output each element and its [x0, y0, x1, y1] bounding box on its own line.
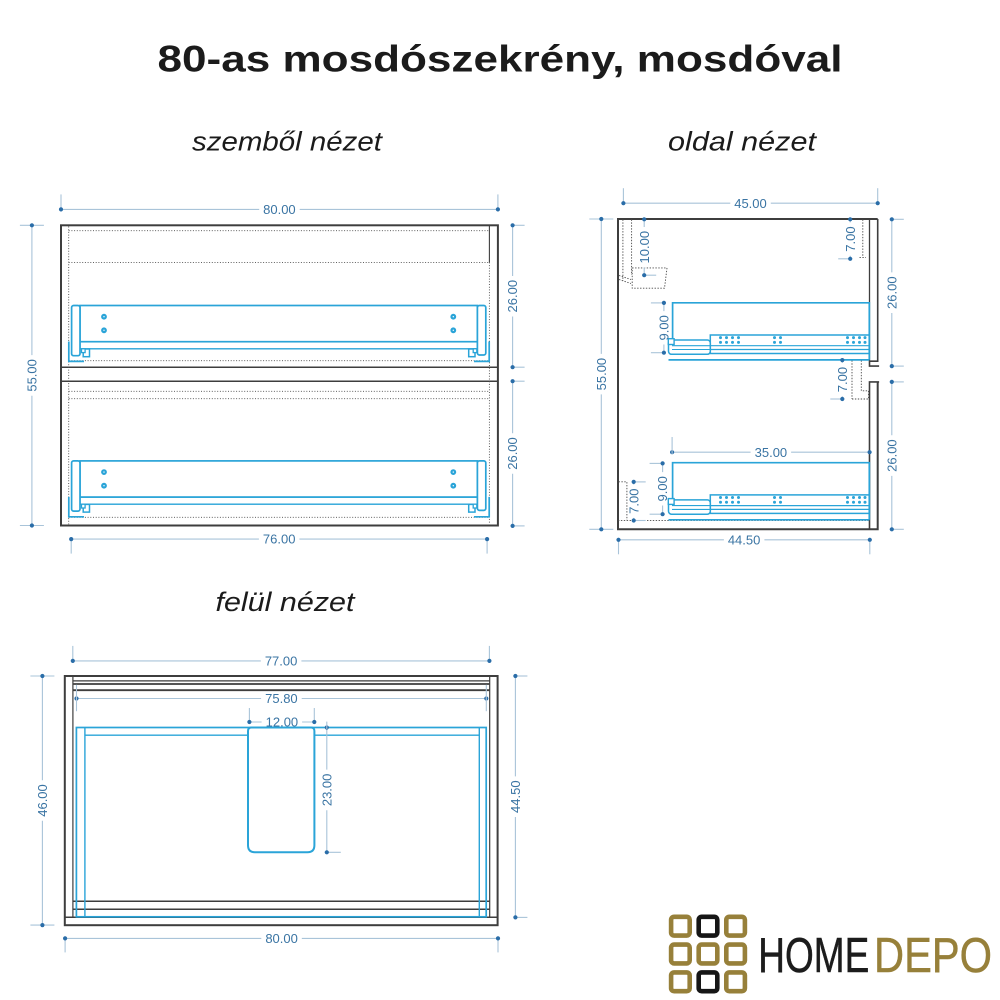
svg-text:80.00: 80.00 [263, 202, 296, 217]
svg-text:77.00: 77.00 [265, 654, 298, 669]
svg-text:44.50: 44.50 [728, 532, 761, 547]
svg-text:9.00: 9.00 [657, 315, 672, 340]
svg-text:7.00: 7.00 [626, 489, 641, 514]
svg-text:26.00: 26.00 [505, 437, 520, 470]
svg-text:80-as mosdószekrény, mosdóval: 80-as mosdószekrény, mosdóval [158, 39, 843, 80]
svg-text:26.00: 26.00 [884, 439, 899, 472]
svg-text:55.00: 55.00 [25, 359, 40, 392]
svg-text:26.00: 26.00 [884, 276, 899, 309]
svg-text:23.00: 23.00 [319, 774, 334, 807]
svg-text:7.00: 7.00 [843, 226, 858, 251]
svg-text:szemből nézet: szemből nézet [192, 127, 384, 157]
svg-text:45.00: 45.00 [734, 196, 767, 211]
svg-text:DEPO: DEPO [874, 929, 992, 983]
svg-text:44.50: 44.50 [508, 780, 523, 813]
svg-text:12.00: 12.00 [266, 715, 299, 730]
svg-text:75.80: 75.80 [265, 691, 298, 706]
svg-text:felül nézet: felül nézet [216, 587, 357, 617]
svg-text:26.00: 26.00 [505, 280, 520, 313]
svg-text:35.00: 35.00 [755, 445, 788, 460]
svg-text:9.00: 9.00 [655, 476, 670, 501]
svg-text:oldal nézet: oldal nézet [668, 127, 818, 157]
svg-text:55.00: 55.00 [594, 358, 609, 391]
svg-text:10.00: 10.00 [637, 231, 652, 264]
svg-text:80.00: 80.00 [265, 931, 298, 946]
svg-text:46.00: 46.00 [35, 784, 50, 817]
svg-text:7.00: 7.00 [835, 367, 850, 392]
svg-text:76.00: 76.00 [263, 532, 296, 547]
svg-text:HOME: HOME [758, 929, 869, 983]
